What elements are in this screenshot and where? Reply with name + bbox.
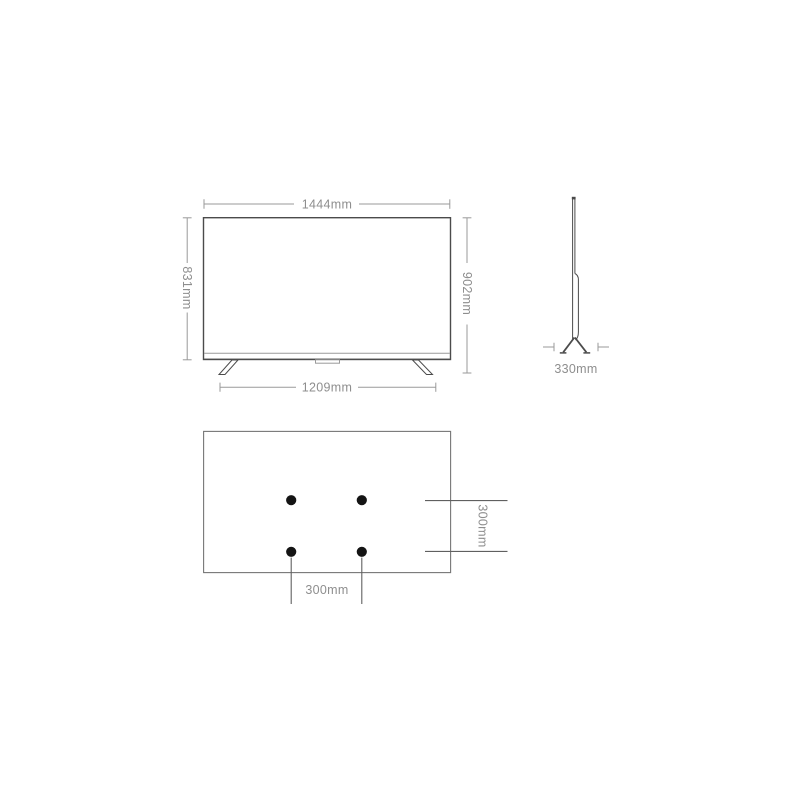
side-panel-bulge bbox=[575, 274, 579, 341]
screen-height-dimension: 831mm bbox=[180, 218, 194, 360]
tv-dimensions-diagram: 1444mm 831mm 902mm bbox=[0, 0, 800, 800]
stand-span-dimension: 1209mm bbox=[220, 381, 436, 395]
stand-span-dimension-label: 1209mm bbox=[302, 381, 352, 395]
overall-height-dimension-label: 902mm bbox=[460, 272, 474, 315]
side-stand-leg-right bbox=[575, 338, 587, 353]
vesa-vertical-dimension-label: 300mm bbox=[475, 504, 489, 547]
side-view: 330mm bbox=[543, 197, 609, 376]
tv-left-foot bbox=[219, 360, 238, 375]
vesa-hole-top-right bbox=[357, 495, 367, 505]
side-stand-leg-left bbox=[563, 338, 574, 353]
depth-dimension: 330mm bbox=[543, 343, 609, 376]
tv-center-tab bbox=[316, 360, 340, 363]
tv-right-foot bbox=[413, 360, 433, 375]
width-dimension: 1444mm bbox=[204, 198, 450, 212]
tv-front-outline bbox=[204, 218, 451, 360]
diagram-canvas: 1444mm 831mm 902mm bbox=[0, 0, 800, 800]
overall-height-dimension: 902mm bbox=[460, 218, 474, 373]
vesa-hole-bottom-right bbox=[357, 547, 367, 557]
front-view: 1444mm 831mm 902mm bbox=[180, 198, 474, 395]
width-dimension-label: 1444mm bbox=[302, 198, 352, 212]
vesa-hole-top-left bbox=[286, 495, 296, 505]
vesa-hole-bottom-left bbox=[286, 547, 296, 557]
rear-panel-outline bbox=[204, 431, 451, 572]
screen-height-dimension-label: 831mm bbox=[180, 266, 194, 309]
depth-dimension-label: 330mm bbox=[554, 362, 597, 376]
rear-view: 300mm 300mm bbox=[204, 431, 508, 604]
vesa-horizontal-dimension-label: 300mm bbox=[305, 583, 348, 597]
